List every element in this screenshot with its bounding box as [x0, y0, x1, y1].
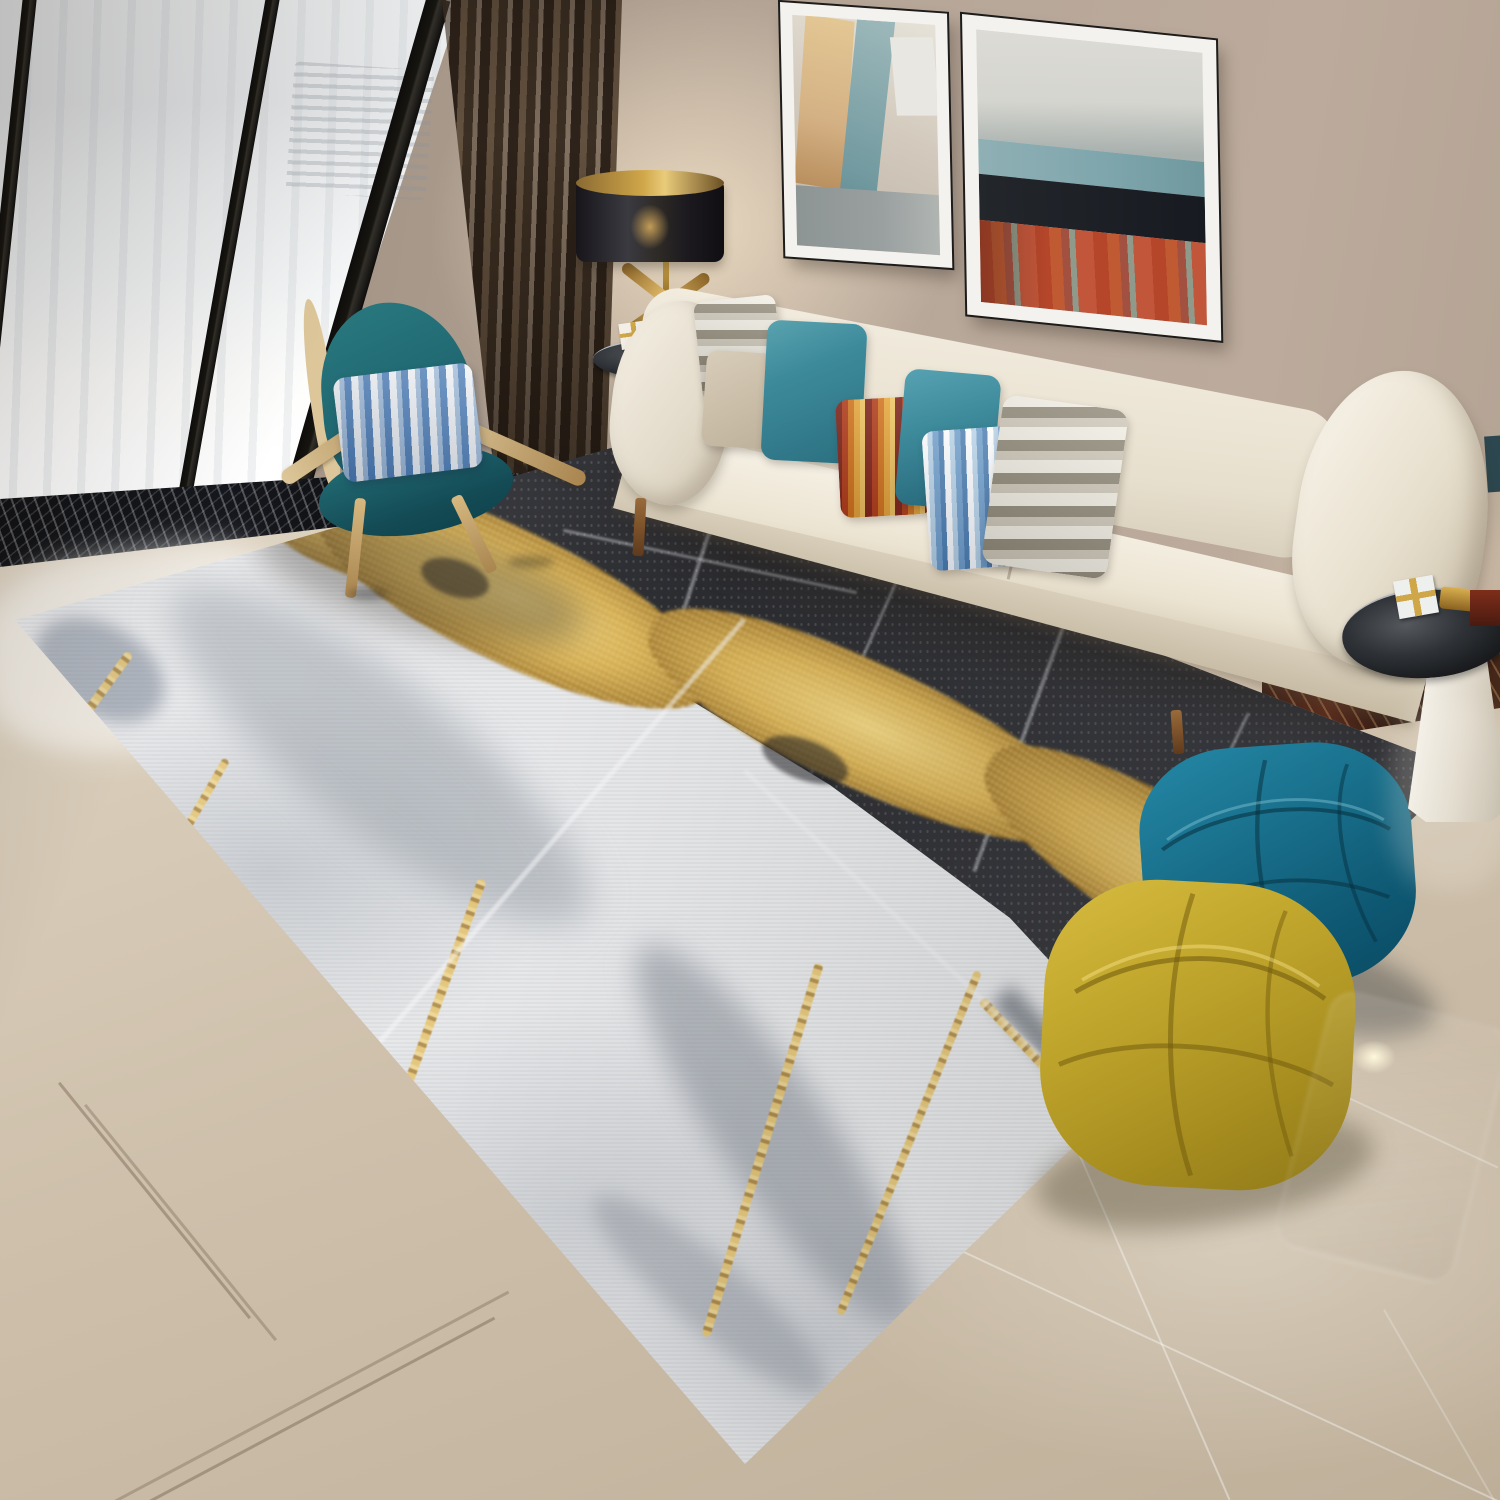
- lamp-shade-gold-rim: [576, 170, 724, 196]
- painting-right-artwork: [976, 29, 1207, 325]
- painting-right: [962, 14, 1221, 341]
- floor-reflection-highlight: [1352, 1040, 1396, 1074]
- painting-left: [780, 2, 952, 268]
- red-decor: [1470, 590, 1500, 626]
- painting-left-artwork: [792, 15, 940, 255]
- chair-striped-pillow: [332, 362, 484, 483]
- chair-leg-shadow: [508, 556, 554, 568]
- floor-reflection-sofa: [1390, 700, 1500, 890]
- pillow-gray-striped: [981, 394, 1129, 580]
- living-room-product-photo: [0, 0, 1500, 1500]
- artwork-gray-band: [796, 185, 940, 255]
- artwork-white-shape: [890, 37, 940, 115]
- gift-box-decor: [1393, 575, 1439, 619]
- chair-leg-shadow: [348, 588, 388, 600]
